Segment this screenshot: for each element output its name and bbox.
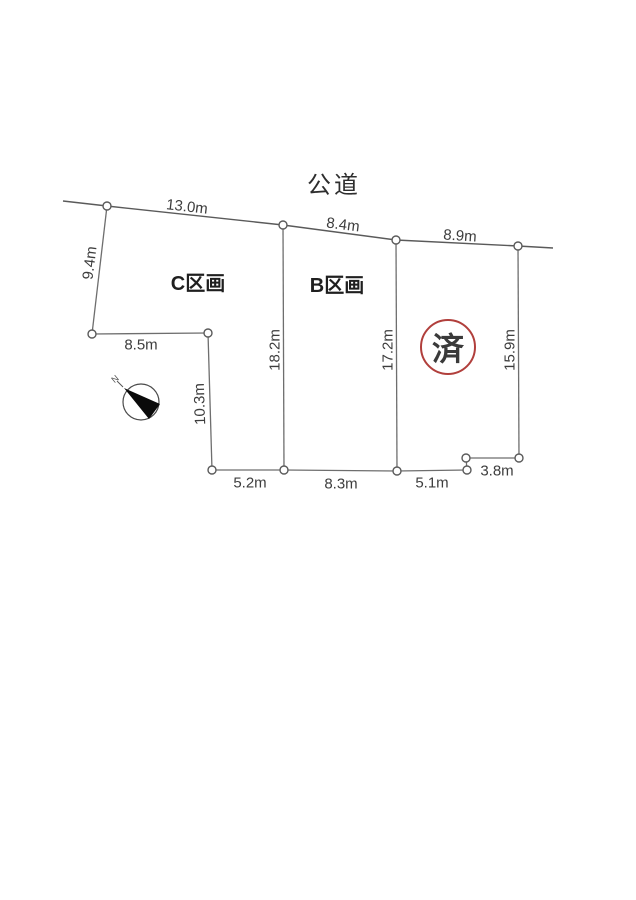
measurement-road-c: 13.0m xyxy=(165,196,208,218)
vertex-point xyxy=(393,467,401,475)
plot-diagram-page: 公道 13.0m 8.4m 8.9m 9.4m 8.5m xyxy=(0,0,636,900)
land-plot-diagram: 公道 13.0m 8.4m 8.9m 9.4m 8.5m xyxy=(0,0,636,900)
vertex-point xyxy=(514,242,522,250)
vertex-point xyxy=(280,466,288,474)
west-mid-boundary xyxy=(92,333,208,334)
public-road-label: 公道 xyxy=(307,172,361,199)
measurement-divider-cb: 18.2m xyxy=(267,329,284,371)
vertex-point xyxy=(103,202,111,210)
vertex-point xyxy=(88,330,96,338)
measurement-south-a: 5.1m xyxy=(415,475,448,492)
parcel-c-label: C区画 xyxy=(171,273,225,295)
measurement-west-upper: 9.4m xyxy=(80,245,101,280)
parcel-b-label: B区画 xyxy=(310,275,364,297)
vertex-point xyxy=(204,329,212,337)
measurement-south-b: 8.3m xyxy=(324,476,357,493)
vertex-point xyxy=(462,454,470,462)
south-boundary-a xyxy=(397,470,467,471)
vertex-point xyxy=(515,454,523,462)
vertex-point xyxy=(392,236,400,244)
measurement-west-lower: 10.3m xyxy=(191,383,209,425)
vertex-point xyxy=(463,466,471,474)
measurement-east: 15.9m xyxy=(502,329,519,371)
measurement-south-a-step: 3.8m xyxy=(480,463,513,480)
sold-stamp-text: 済 xyxy=(432,331,465,367)
vertex-point xyxy=(208,466,216,474)
measurement-road-b: 8.4m xyxy=(325,215,360,236)
south-boundary-b xyxy=(284,470,397,471)
measurement-divider-ba: 17.2m xyxy=(380,329,397,371)
road-boundary-line xyxy=(63,201,553,248)
vertex-point xyxy=(279,221,287,229)
west-lower-boundary xyxy=(208,333,212,470)
measurement-road-a: 8.9m xyxy=(443,226,477,245)
measurement-west-mid: 8.5m xyxy=(124,337,157,354)
measurement-south-c: 5.2m xyxy=(233,475,266,492)
compass: N xyxy=(109,373,160,420)
